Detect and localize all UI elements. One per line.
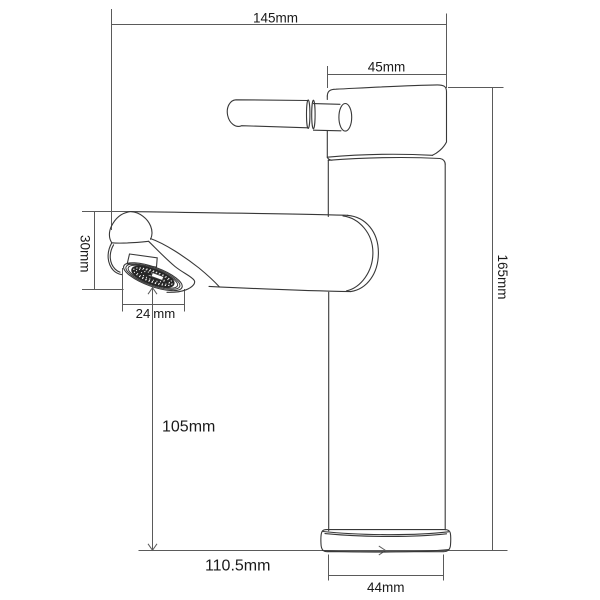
svg-text:110.5mm: 110.5mm <box>205 558 271 575</box>
svg-text:145mm: 145mm <box>253 11 298 26</box>
svg-text:45mm: 45mm <box>368 60 406 75</box>
svg-text:30mm: 30mm <box>78 235 93 273</box>
svg-text:105mm: 105mm <box>162 419 215 436</box>
svg-text:165mm: 165mm <box>495 255 510 300</box>
svg-text:mm: mm <box>153 306 175 321</box>
svg-text:44mm: 44mm <box>367 580 405 595</box>
svg-text:24: 24 <box>136 306 151 321</box>
